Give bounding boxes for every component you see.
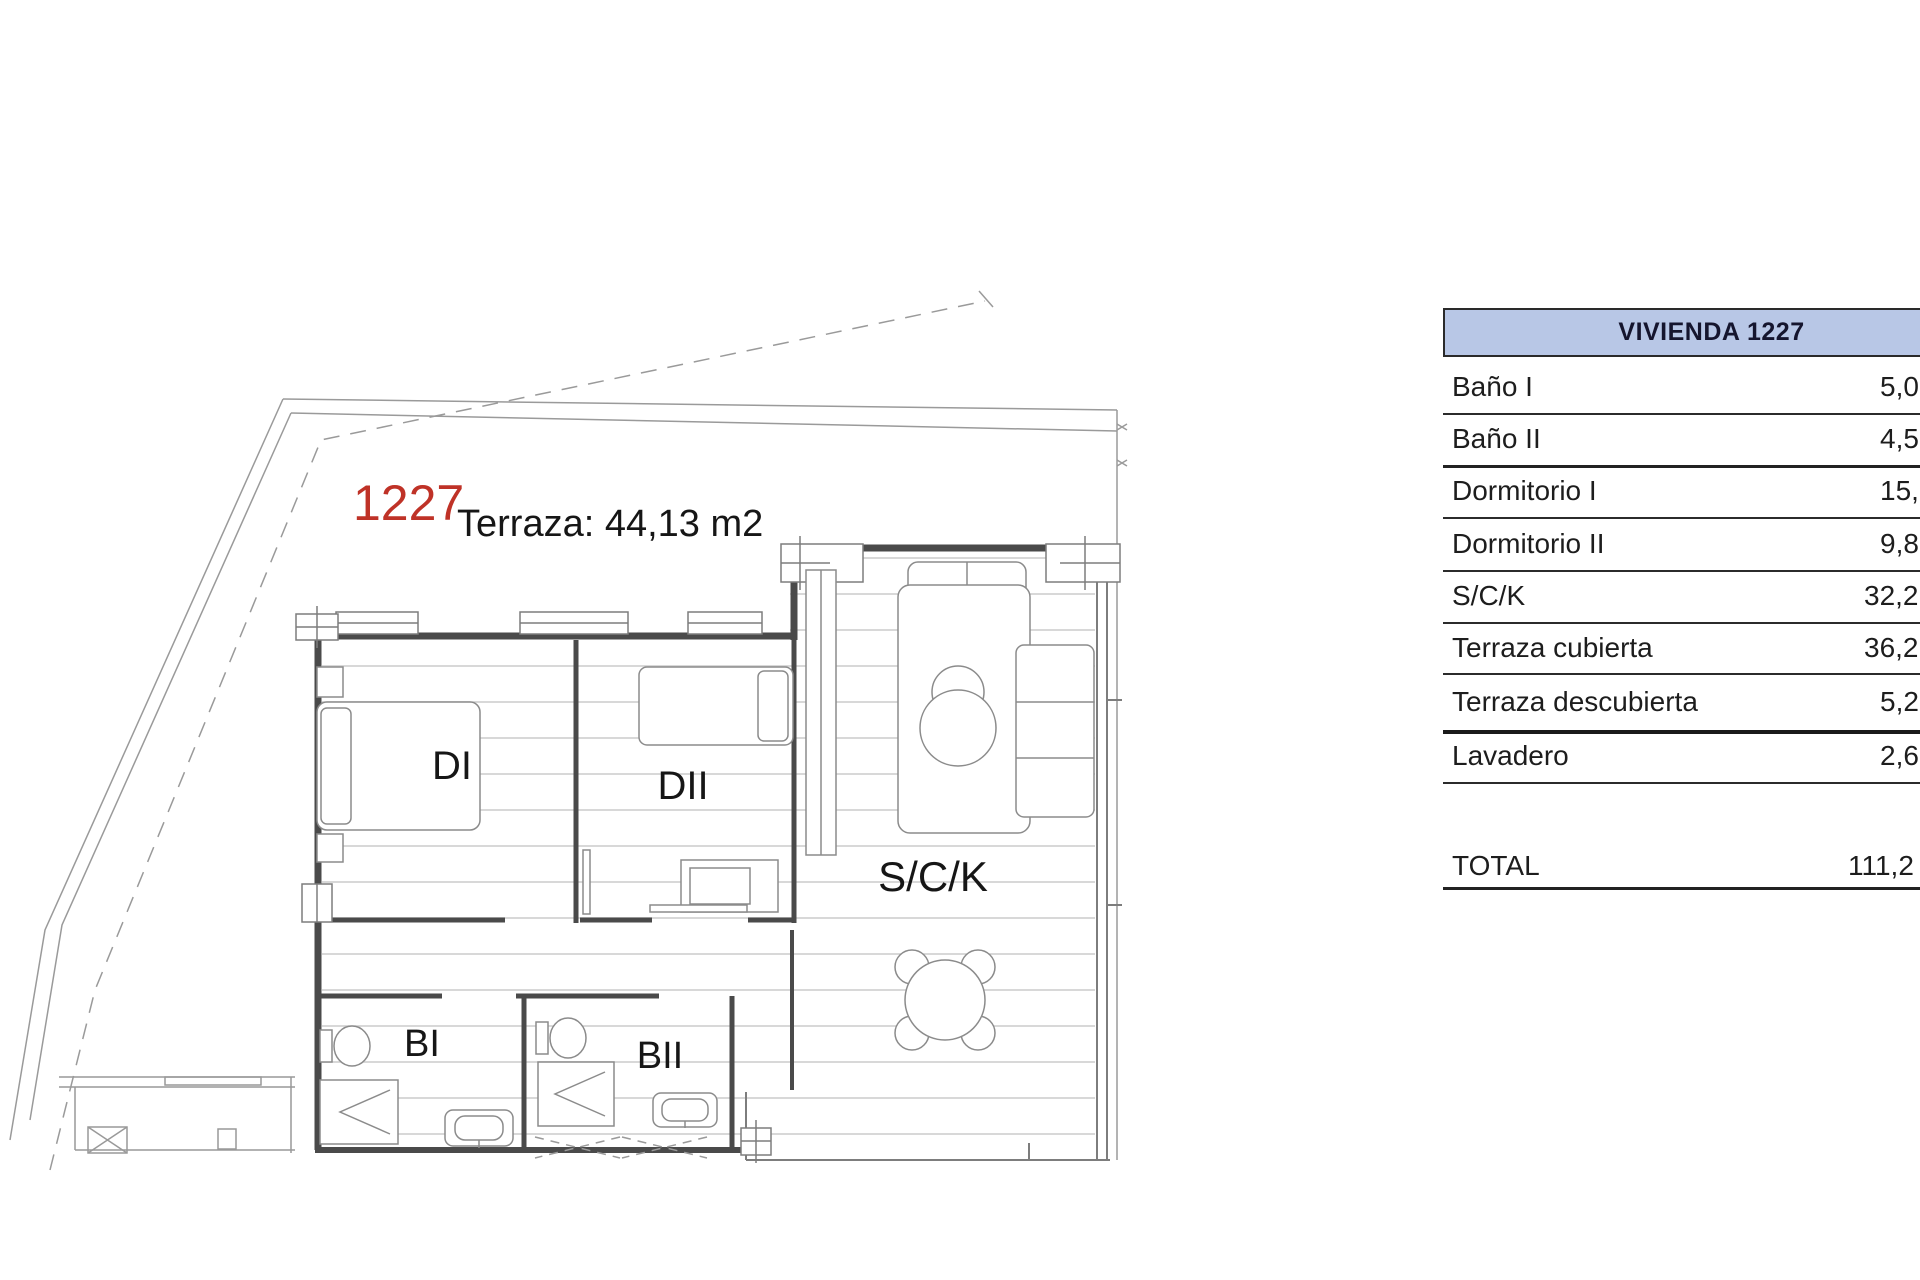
- table-row: Dormitorio I 15,: [1443, 465, 1920, 519]
- table-row: Dormitorio II 9,8: [1443, 517, 1920, 572]
- row-value: 36,2: [1864, 632, 1919, 664]
- kitchen-counter: [806, 570, 836, 855]
- room-label-bi: BI: [404, 1023, 440, 1065]
- total-value: 111,2: [1848, 850, 1914, 882]
- row-label: Dormitorio II: [1443, 528, 1604, 560]
- dining-table: [895, 950, 995, 1050]
- room-label-bii: BII: [637, 1035, 683, 1077]
- window: [336, 612, 418, 634]
- row-label: Baño II: [1443, 423, 1541, 455]
- room-label-di: DI: [432, 744, 472, 788]
- column-marker: [1046, 536, 1120, 590]
- neighbor-terrace: [59, 1077, 295, 1153]
- room-label-dii: DII: [657, 764, 708, 808]
- unit-number-label: 1227: [353, 475, 464, 531]
- table-row: Terraza descubierta 5,2: [1443, 673, 1920, 734]
- row-label: Dormitorio I: [1443, 475, 1597, 507]
- table-row: Baño I 5,0: [1443, 360, 1920, 415]
- row-label: S/C/K: [1443, 580, 1525, 612]
- row-label: Terraza cubierta: [1443, 632, 1653, 664]
- area-table: VIVIENDA 1227 Baño I 5,0 Baño II 4,5 Dor…: [1443, 308, 1920, 357]
- row-value: 5,0: [1880, 371, 1919, 403]
- table-row: Lavadero 2,6: [1443, 730, 1920, 784]
- table-row: Terraza cubierta 36,2: [1443, 622, 1920, 675]
- table-total-row: TOTAL 111,2: [1443, 845, 1920, 890]
- total-label: TOTAL: [1443, 850, 1540, 882]
- floorplan-page: { "plan": { "unit_number": "1227", "terr…: [0, 0, 1920, 1280]
- row-label: Lavadero: [1443, 740, 1569, 772]
- window: [302, 884, 332, 922]
- terrace-note-label: Terraza: 44,13 m2: [457, 503, 763, 545]
- row-value: 4,5: [1880, 423, 1919, 455]
- window: [688, 612, 762, 634]
- area-table-header: VIVIENDA 1227: [1443, 308, 1920, 357]
- row-value: 15,: [1880, 475, 1919, 507]
- row-value: 9,8: [1880, 528, 1919, 560]
- row-label: Terraza descubierta: [1443, 686, 1698, 718]
- window: [520, 612, 628, 634]
- row-value: 5,2: [1880, 686, 1919, 718]
- room-label-sck: S/C/K: [878, 853, 988, 900]
- row-value: 2,6: [1880, 740, 1919, 772]
- table-row: S/C/K 32,2: [1443, 570, 1920, 624]
- table-row: Baño II 4,5: [1443, 413, 1920, 468]
- row-value: 32,2: [1864, 580, 1919, 612]
- dashed-line-end-tick: [979, 291, 993, 307]
- row-label: Baño I: [1443, 371, 1533, 403]
